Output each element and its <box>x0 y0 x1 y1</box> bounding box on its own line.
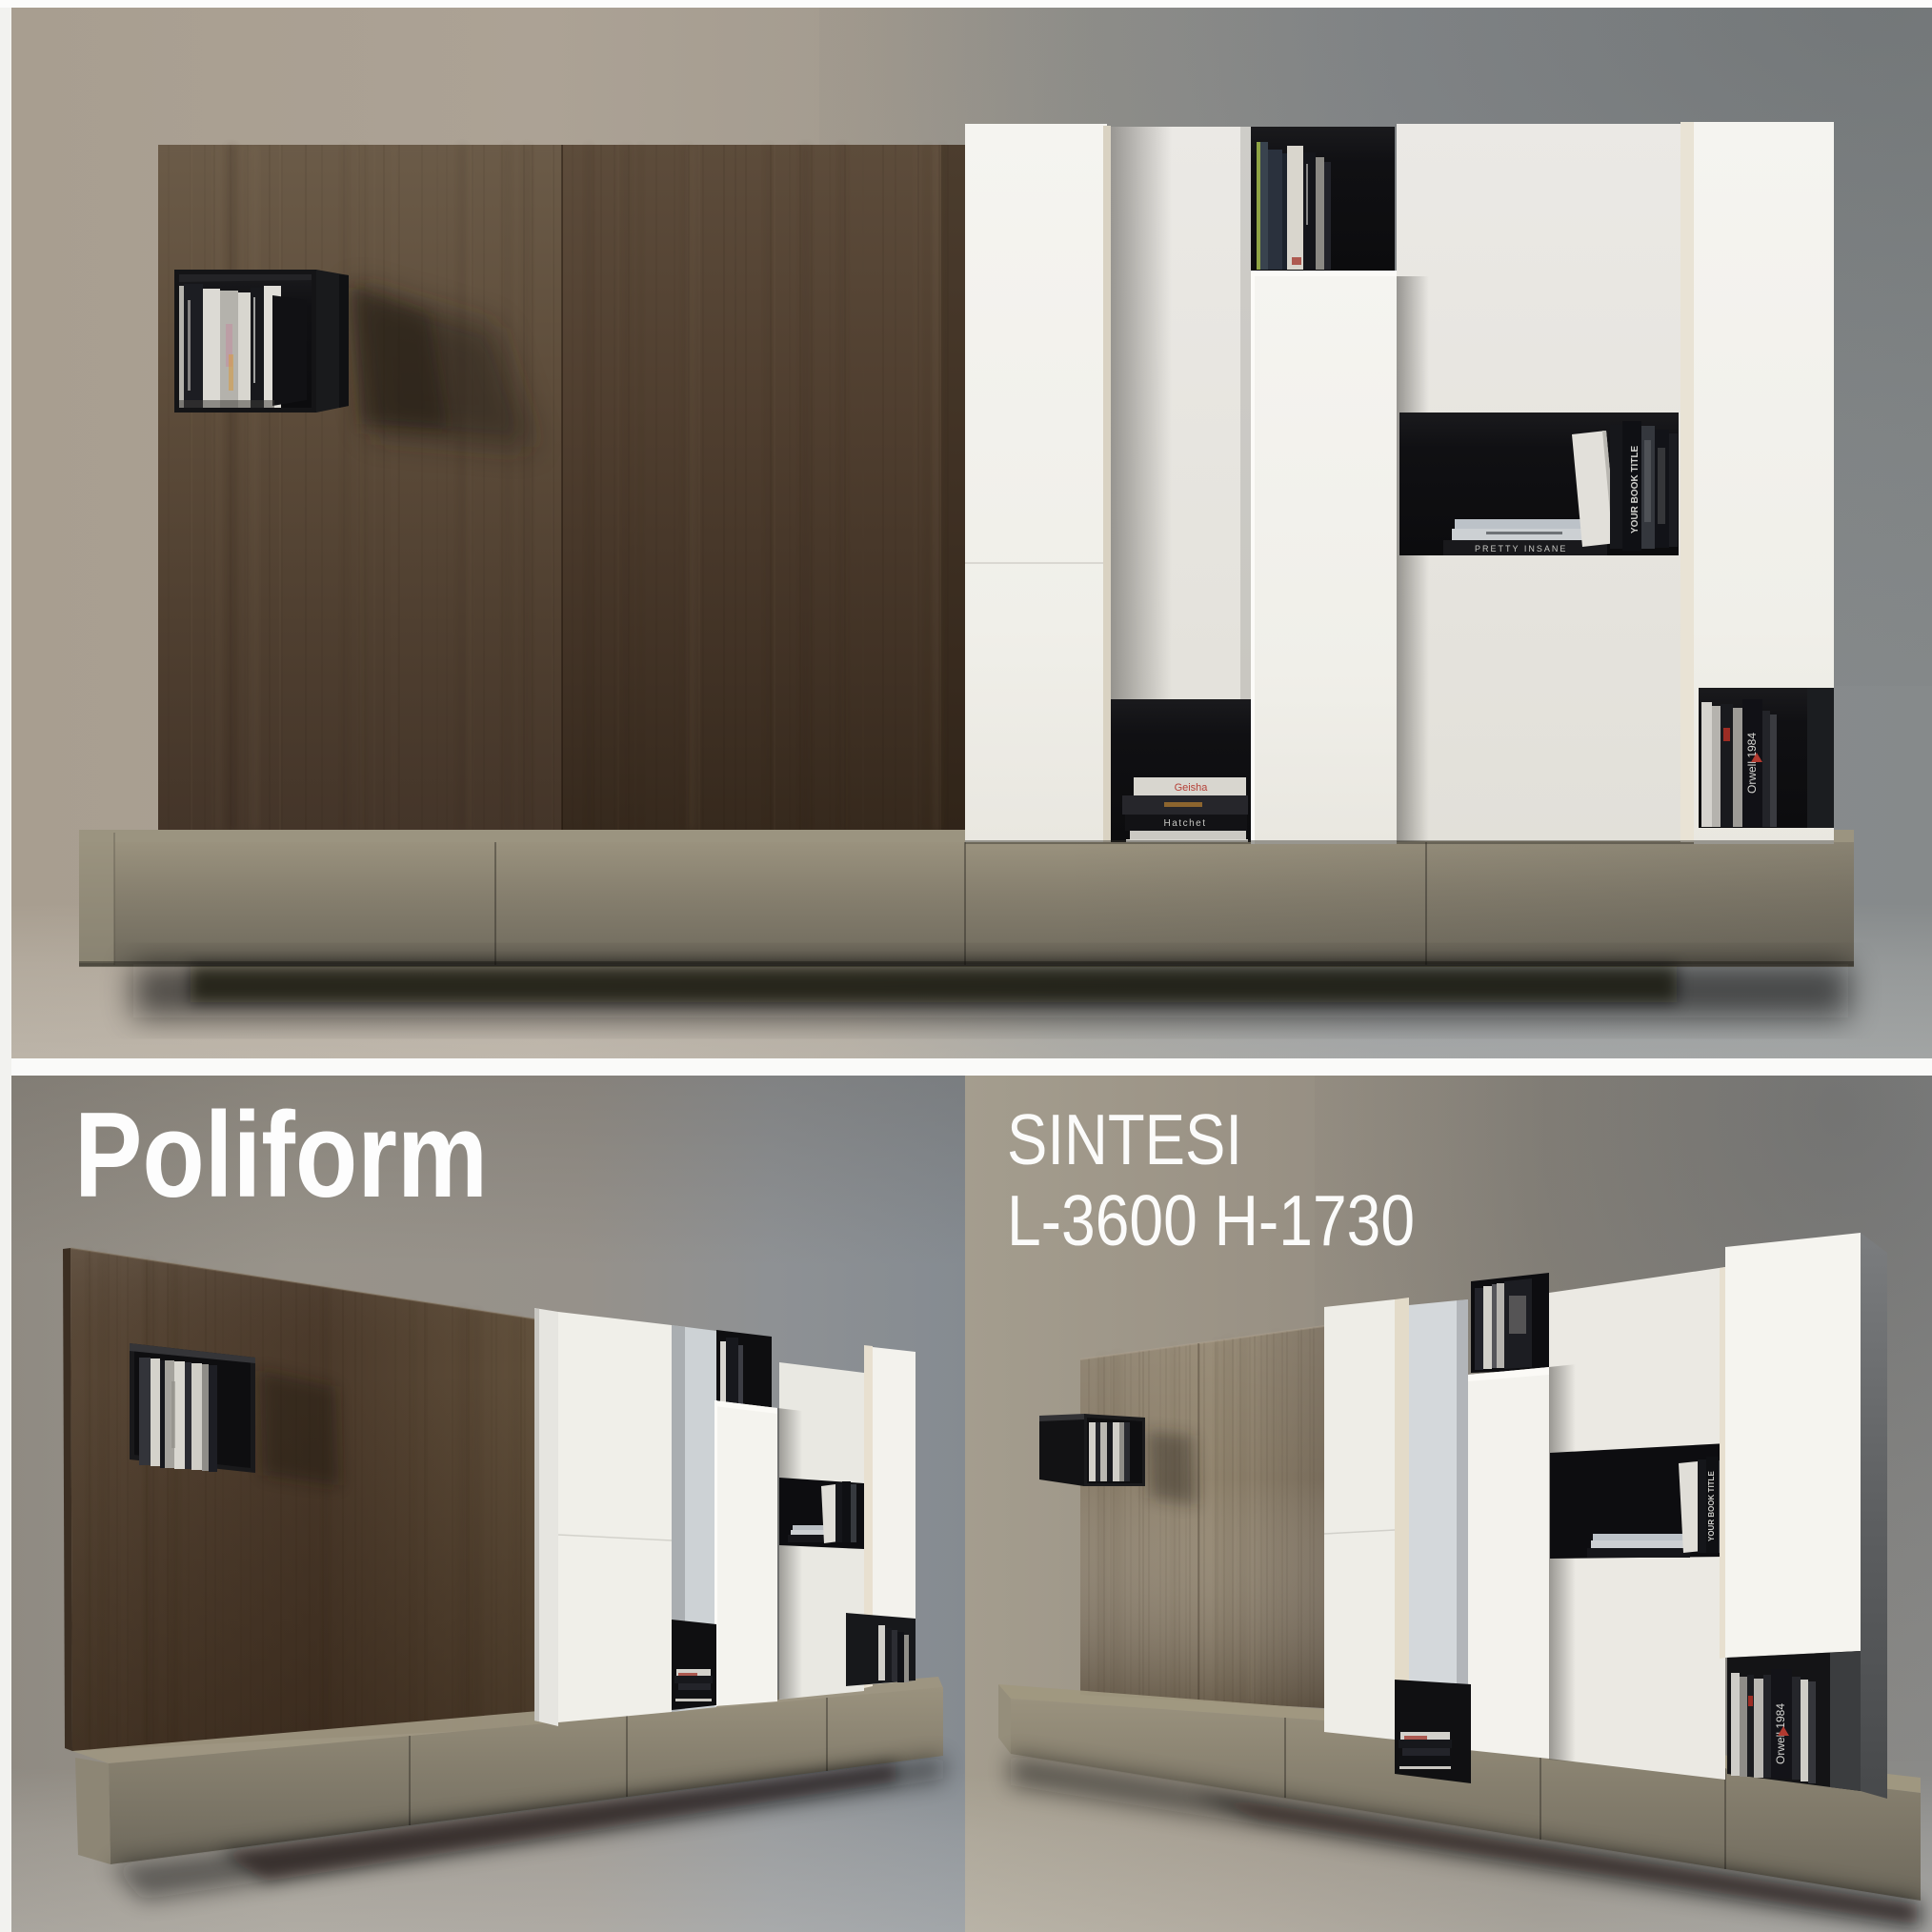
svg-text:Orwell 1984: Orwell 1984 <box>1745 733 1759 794</box>
svg-text:SINTESI: SINTESI <box>1007 1099 1242 1179</box>
svg-text:YOUR BOOK TITLE: YOUR BOOK TITLE <box>1707 1471 1716 1541</box>
svg-text:PRETTY INSANE: PRETTY INSANE <box>1475 544 1567 553</box>
svg-text:YOUR BOOK TITLE: YOUR BOOK TITLE <box>1630 445 1640 533</box>
svg-text:Poliform: Poliform <box>74 1087 488 1222</box>
svg-text:L-3600 H-1730: L-3600 H-1730 <box>1007 1180 1415 1260</box>
svg-text:Geisha: Geisha <box>1175 782 1209 794</box>
svg-text:Hatchet: Hatchet <box>1164 818 1207 829</box>
